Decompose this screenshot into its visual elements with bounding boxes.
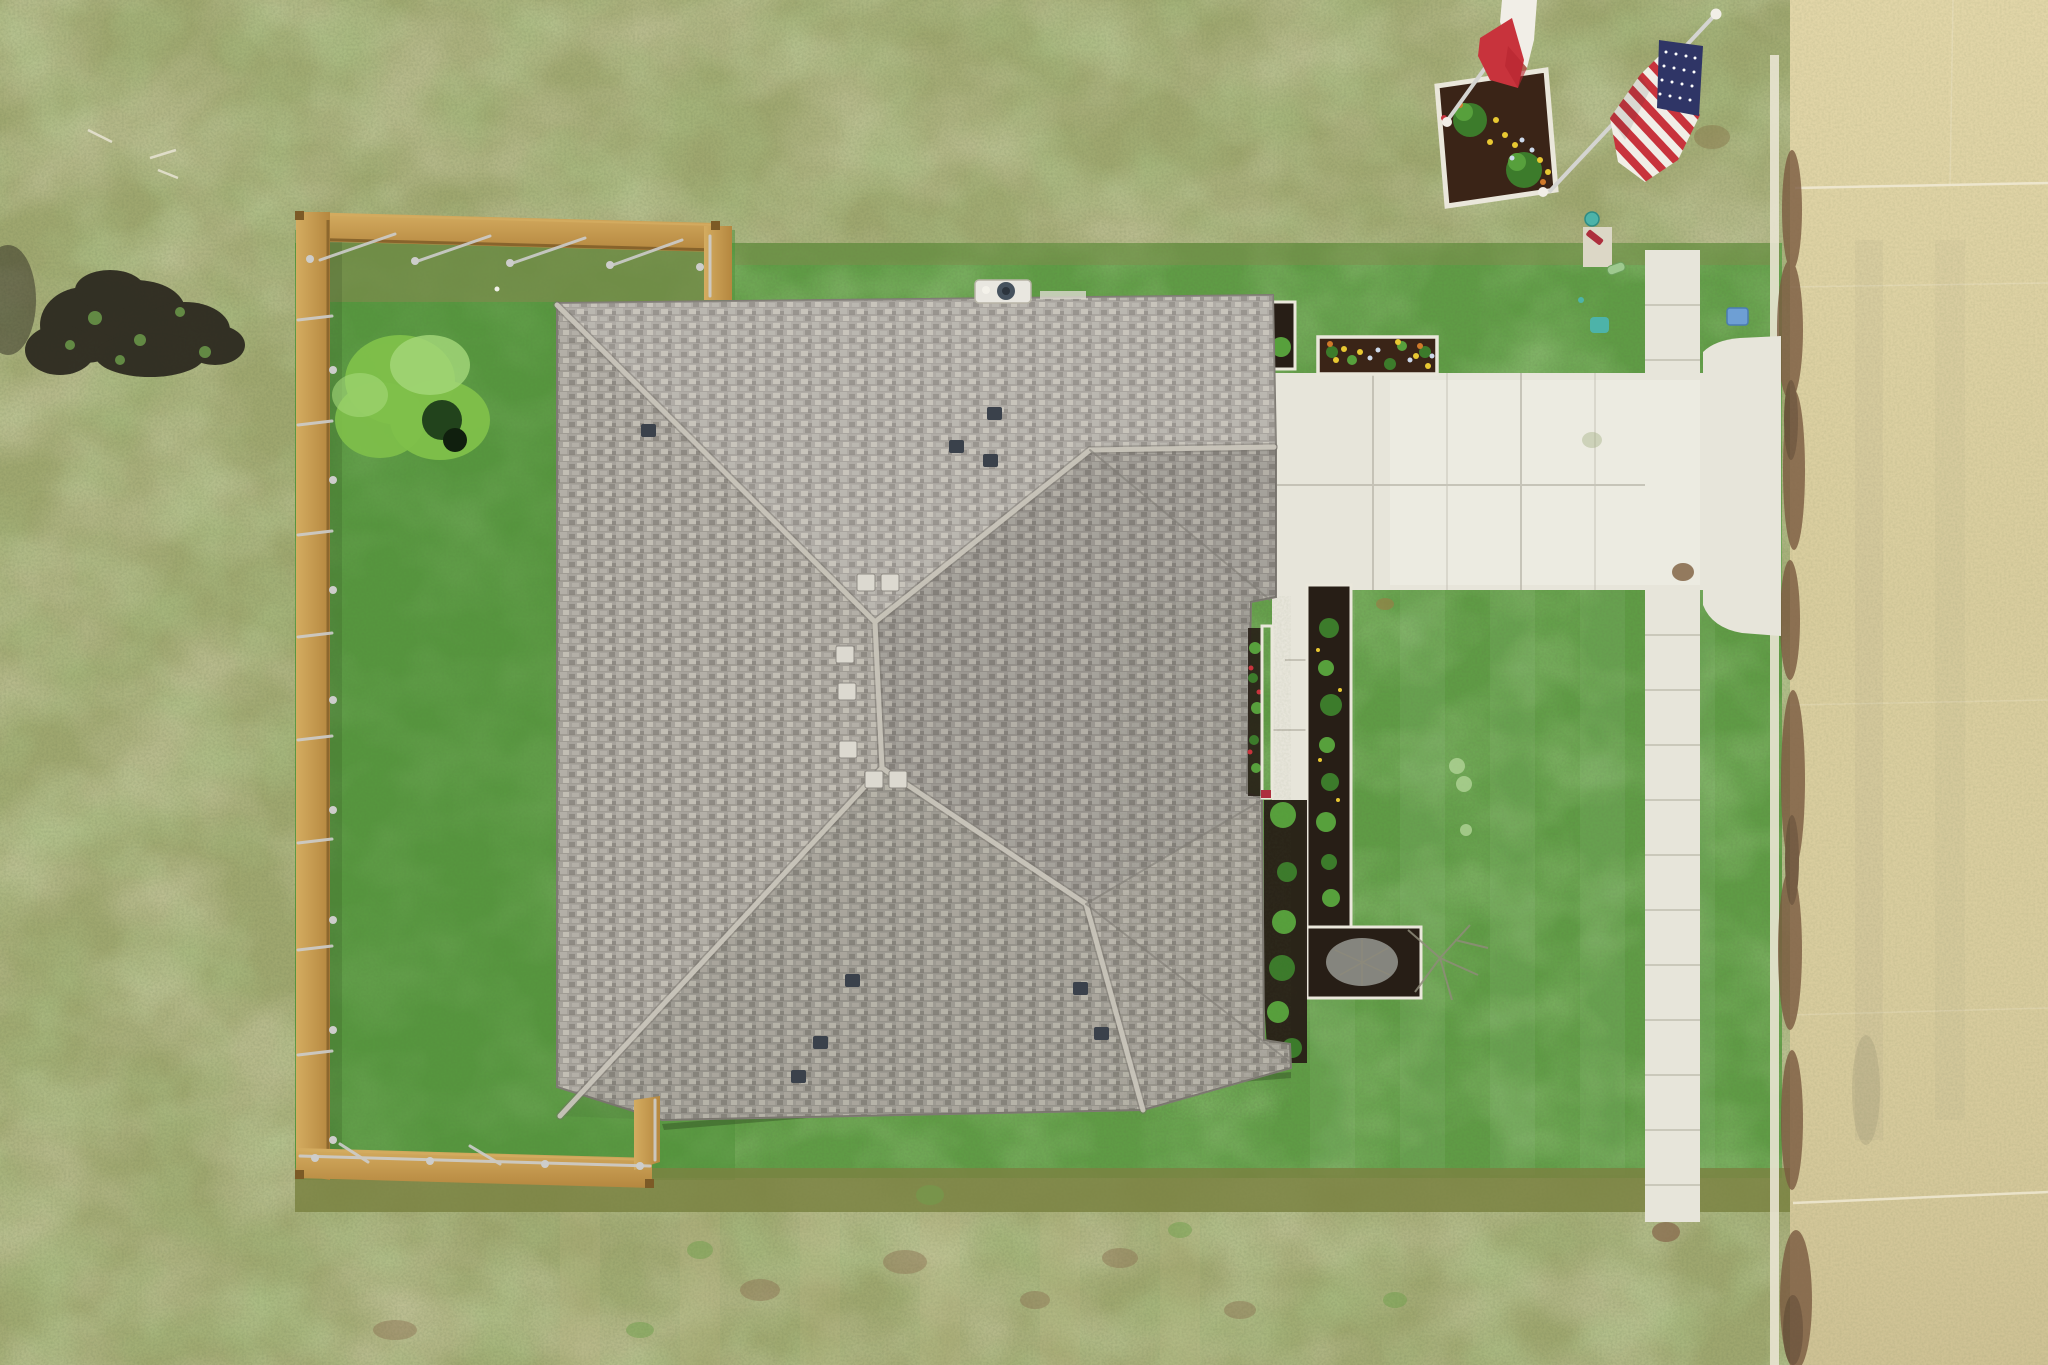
driveway-apron — [1703, 336, 1781, 636]
curb — [1770, 55, 1779, 1365]
us-pole-ball — [1711, 9, 1722, 20]
utility-marker-round — [1585, 212, 1599, 226]
mud-stain — [1672, 563, 1694, 581]
grass-brown-patch — [1694, 125, 1730, 149]
texas-pole-ball — [1442, 117, 1452, 127]
teal-utility-box — [1590, 317, 1609, 333]
blue-utility-box — [1727, 308, 1748, 325]
front-top-band — [735, 243, 1780, 265]
small-marker-dot — [1578, 297, 1584, 303]
rear-wall-strip — [1040, 291, 1086, 299]
sprinkler-head — [495, 287, 500, 292]
walkway-highlight — [1390, 380, 1700, 585]
flag-planter — [1437, 70, 1556, 206]
street — [1770, 0, 2048, 1365]
sidewalk-end-dirt — [1652, 1222, 1680, 1242]
fence-right-top — [704, 226, 732, 300]
porch-red-item — [1261, 790, 1271, 798]
fence-left — [296, 212, 330, 1180]
lawn-brown-spot — [1376, 598, 1394, 610]
aerial-photo — [0, 0, 2048, 1365]
moss-stain — [1582, 432, 1602, 448]
house — [557, 280, 1291, 1130]
us-pole-base — [1538, 187, 1548, 197]
